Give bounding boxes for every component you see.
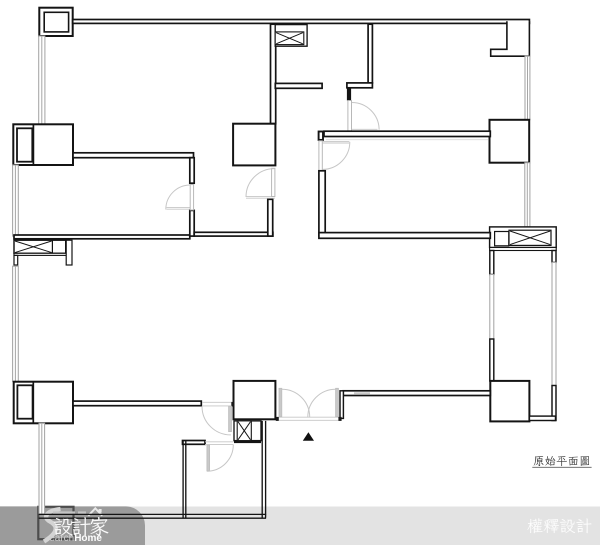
svg-text:earchHome: earchHome [49,533,102,544]
